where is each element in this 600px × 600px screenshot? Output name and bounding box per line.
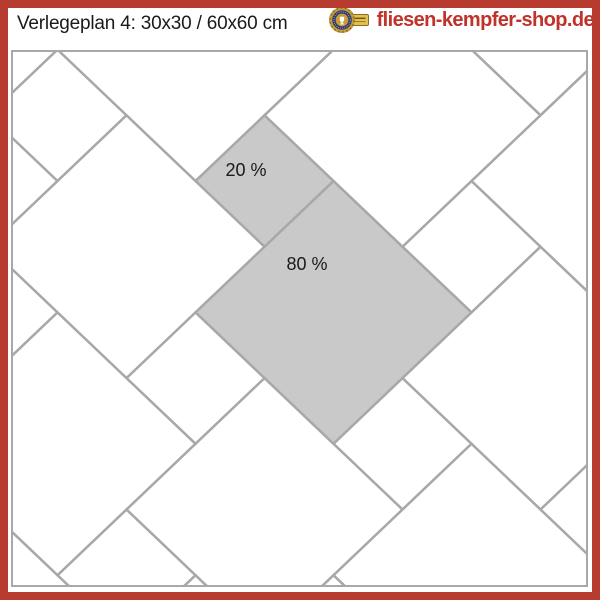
seal-trophy-base xyxy=(340,23,344,24)
share-label: 80 % xyxy=(286,254,327,274)
tile-layout-plan: 20 %80 % xyxy=(11,50,588,587)
page-title: Verlegeplan 4: 30x30 / 60x60 cm xyxy=(17,13,288,35)
tiles-layer xyxy=(11,50,588,587)
brand-text: fliesen-kempfer-shop.de xyxy=(377,9,594,32)
quality-seal-icon xyxy=(328,5,370,35)
seal-trophy-stem xyxy=(341,22,342,23)
brand-group: fliesen-kempfer-shop.de xyxy=(328,4,594,36)
share-label: 20 % xyxy=(225,160,266,180)
seal-trophy-icon xyxy=(339,17,343,22)
page: Verlegeplan 4: 30x30 / 60x60 cm fliesen-… xyxy=(0,0,600,600)
